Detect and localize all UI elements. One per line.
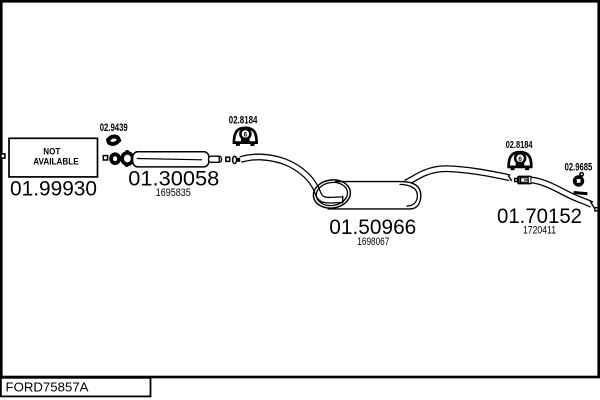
svg-text:02.9439: 02.9439 — [100, 122, 128, 134]
svg-text:01.99930: 01.99930 — [10, 176, 97, 200]
svg-text:NOT: NOT — [43, 146, 60, 156]
svg-text:1695835: 1695835 — [156, 187, 191, 199]
svg-text:02.8184: 02.8184 — [506, 140, 533, 151]
svg-text:02.8184: 02.8184 — [229, 114, 258, 126]
svg-text:FORD75857A: FORD75857A — [6, 380, 89, 395]
svg-text:1720411: 1720411 — [523, 224, 556, 236]
svg-text:1698067: 1698067 — [357, 236, 389, 248]
svg-text:02.9685: 02.9685 — [565, 161, 593, 173]
svg-text:AVAILABLE: AVAILABLE — [33, 157, 78, 167]
